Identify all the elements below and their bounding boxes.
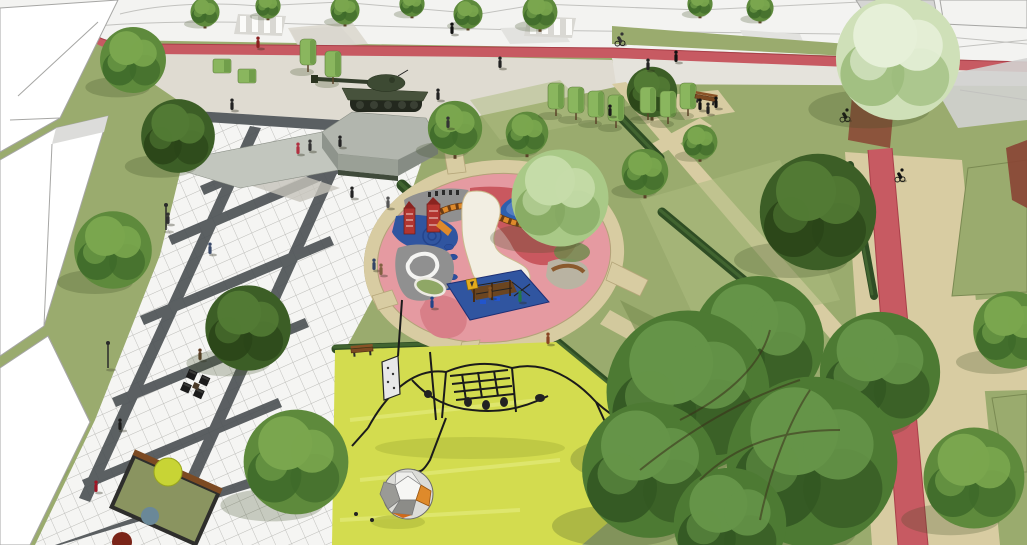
blue-grass-plant [141,507,159,525]
park-render [0,0,1027,545]
yellow-shrub [154,458,182,486]
climbing-panel [382,356,400,400]
equipment-shadow [375,437,565,459]
hedge-cube [213,59,231,73]
scene-svg [0,0,1027,545]
hedge-cube [238,69,256,83]
